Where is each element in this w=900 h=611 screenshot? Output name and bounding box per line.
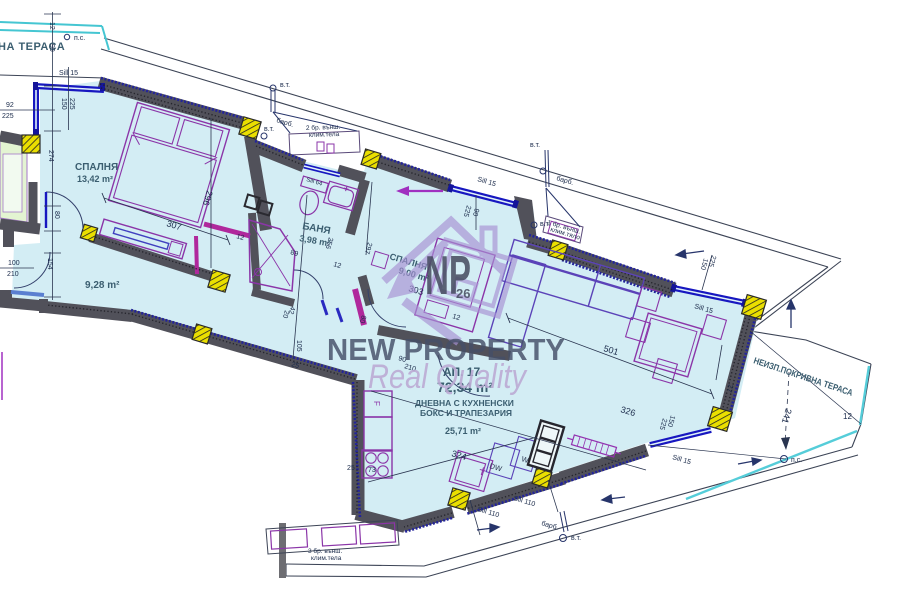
svg-text:п.с.: п.с. (74, 35, 85, 42)
svg-text:БОКС И ТРАПЕЗАРИЯ: БОКС И ТРАПЕЗАРИЯ (420, 408, 512, 418)
svg-text:154: 154 (46, 258, 53, 270)
svg-text:150: 150 (60, 98, 67, 110)
svg-text:п.с.: п.с. (791, 457, 802, 464)
svg-text:в.т.: в.т. (530, 142, 540, 149)
svg-text:клим.тела: клим.тела (309, 131, 340, 139)
svg-text:в.т.: в.т. (571, 535, 581, 542)
svg-text:225: 225 (2, 113, 14, 120)
svg-text:25: 25 (347, 465, 355, 472)
svg-text:99: 99 (48, 44, 55, 52)
svg-text:12: 12 (843, 412, 852, 421)
svg-text:СПАЛНЯ: СПАЛНЯ (75, 162, 118, 173)
svg-text:274: 274 (47, 150, 54, 162)
svg-text:73: 73 (368, 467, 376, 474)
svg-text:210: 210 (7, 271, 19, 278)
svg-text:9,28 m²: 9,28 m² (85, 280, 120, 291)
svg-text:12: 12 (48, 22, 55, 30)
svg-text:105: 105 (295, 340, 302, 352)
svg-text:клим.тела: клим.тела (311, 555, 342, 562)
svg-text:13,42 m²: 13,42 m² (77, 174, 113, 184)
svg-text:ДНЕВНА С КУХНЕНСКИ: ДНЕВНА С КУХНЕНСКИ (415, 398, 514, 408)
svg-text:3 бр. външ.: 3 бр. външ. (308, 547, 342, 555)
svg-text:25,71 m²: 25,71 m² (445, 426, 481, 436)
svg-text:Real Quality: Real Quality (368, 358, 528, 396)
svg-text:в.т.: в.т. (264, 126, 274, 133)
svg-text:в.т.: в.т. (280, 82, 290, 89)
svg-text:Sill 15: Sill 15 (59, 70, 78, 77)
svg-text:26: 26 (456, 286, 470, 301)
svg-text:F: F (372, 401, 381, 406)
svg-text:80: 80 (53, 211, 60, 219)
svg-text:225: 225 (68, 98, 75, 110)
svg-text:92: 92 (6, 102, 14, 109)
svg-text:100: 100 (8, 260, 20, 267)
